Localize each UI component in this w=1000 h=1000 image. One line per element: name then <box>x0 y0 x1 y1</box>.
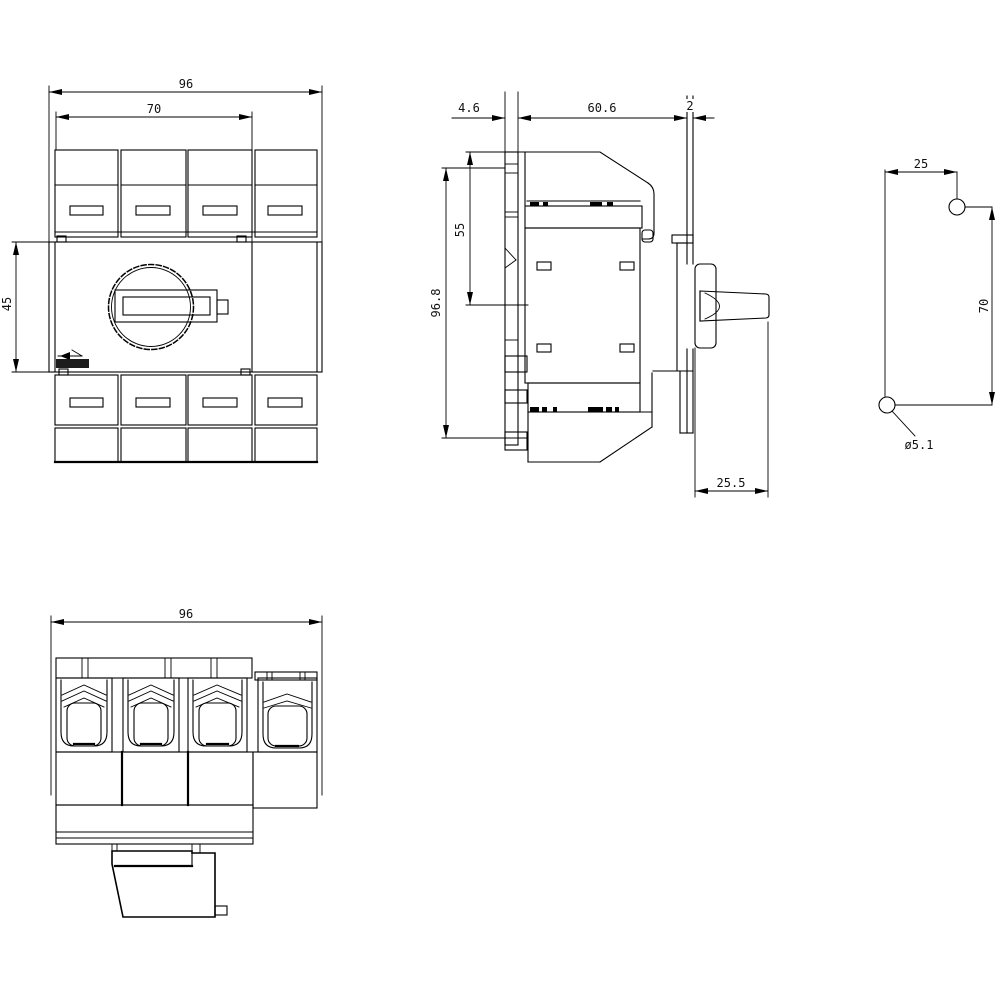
mounting-panel <box>687 96 693 433</box>
front-bottom-terminal-row <box>55 375 317 462</box>
side-dim-rail-depth-label: 4.6 <box>458 101 480 115</box>
bottom-view: 96 <box>51 607 322 917</box>
side-dim-overall-height-label: 96.8 <box>429 289 443 318</box>
bottom-lower-housing <box>56 752 317 844</box>
side-dim-handle-projection-label: 25.5 <box>717 476 746 490</box>
technical-drawing: 96 70 45 <box>0 0 1000 1000</box>
bottom-top-band <box>56 658 317 680</box>
drill-dim-offset: 25 <box>885 157 957 175</box>
side-dim-body-depth: 60.6 <box>518 101 687 121</box>
front-body <box>49 236 322 375</box>
side-dim-top-to-axis-label: 55 <box>453 223 467 237</box>
front-dim-pole-width-label: 70 <box>147 102 161 116</box>
drill-dim-offset-label: 25 <box>914 157 928 171</box>
drill-dim-diameter: ø5.1 <box>892 411 933 452</box>
handle-side-profile <box>695 264 769 348</box>
dimension-drawing-canvas: 96 70 45 <box>0 0 1000 1000</box>
side-dim-body-depth-label: 60.6 <box>588 101 617 115</box>
mounting-hole-top <box>949 199 965 215</box>
side-dim-overall-height: 96.8 <box>429 168 528 438</box>
drill-dim-spacing: 70 <box>977 207 995 405</box>
drill-plan-view: 25 70 ø5.1 <box>879 157 995 452</box>
terminal-slot <box>70 206 103 215</box>
drill-dim-spacing-label: 70 <box>977 299 991 313</box>
din-rail-bracket <box>505 152 527 450</box>
front-dim-overall-width-label: 96 <box>179 77 193 91</box>
bottom-handle-housing <box>112 844 227 917</box>
terminal-slot <box>136 398 170 407</box>
front-dim-pole-width: 70 <box>56 102 252 242</box>
front-view: 96 70 45 <box>0 77 322 462</box>
type-label-block <box>56 359 89 368</box>
front-dim-handle-height: 45 <box>0 242 49 372</box>
switch-symbol <box>58 350 82 360</box>
terminal-slot <box>268 206 302 215</box>
side-dim-panel-thickness: 2 <box>683 99 714 121</box>
bottom-terminal-row <box>56 678 317 752</box>
drill-dim-diameter-label: ø5.1 <box>905 438 934 452</box>
side-view: 4.6 60.6 2 55 <box>429 92 769 497</box>
front-dim-handle-height-label: 45 <box>0 297 14 311</box>
terminal-slot <box>203 398 237 407</box>
terminal-slot <box>136 206 170 215</box>
bottom-dim-overall-width-label: 96 <box>179 607 193 621</box>
side-dim-top-to-axis: 55 <box>453 152 528 305</box>
terminal-slot <box>268 398 302 407</box>
mounting-hole-bottom <box>879 397 895 413</box>
rotary-handle <box>109 265 229 350</box>
side-dim-panel-thickness-label: 2 <box>686 99 693 113</box>
side-dim-rail-depth: 4.6 <box>452 92 518 152</box>
terminal-slot <box>70 398 103 407</box>
terminal-slot <box>203 206 237 215</box>
front-top-terminal-row <box>55 150 317 237</box>
side-body <box>518 152 693 462</box>
